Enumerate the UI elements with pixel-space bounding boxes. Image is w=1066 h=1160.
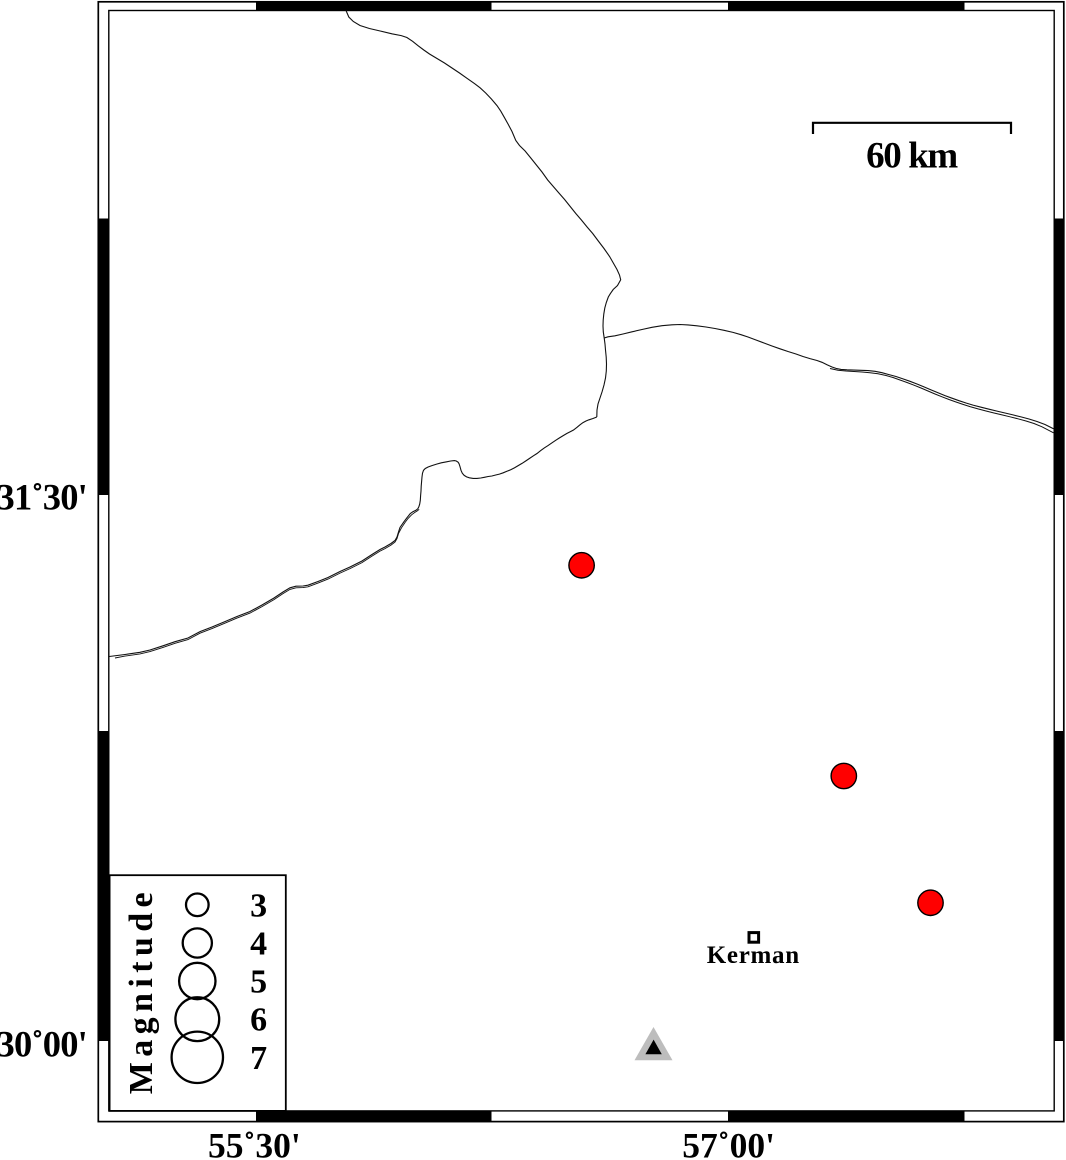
- svg-text:60 km: 60 km: [866, 136, 958, 177]
- svg-text:55˚30': 55˚30': [208, 1126, 301, 1160]
- svg-text:3: 3: [250, 887, 267, 924]
- svg-text:Kerman: Kerman: [707, 942, 800, 969]
- svg-text:Magnitude: Magnitude: [123, 887, 160, 1094]
- svg-text:57˚00': 57˚00': [682, 1126, 775, 1160]
- svg-text:4: 4: [250, 926, 267, 963]
- svg-text:30˚00': 30˚00': [0, 1024, 87, 1065]
- svg-text:6: 6: [250, 1002, 267, 1039]
- svg-text:31˚30': 31˚30': [0, 477, 87, 518]
- svg-text:5: 5: [250, 964, 267, 1001]
- svg-text:7: 7: [250, 1040, 267, 1077]
